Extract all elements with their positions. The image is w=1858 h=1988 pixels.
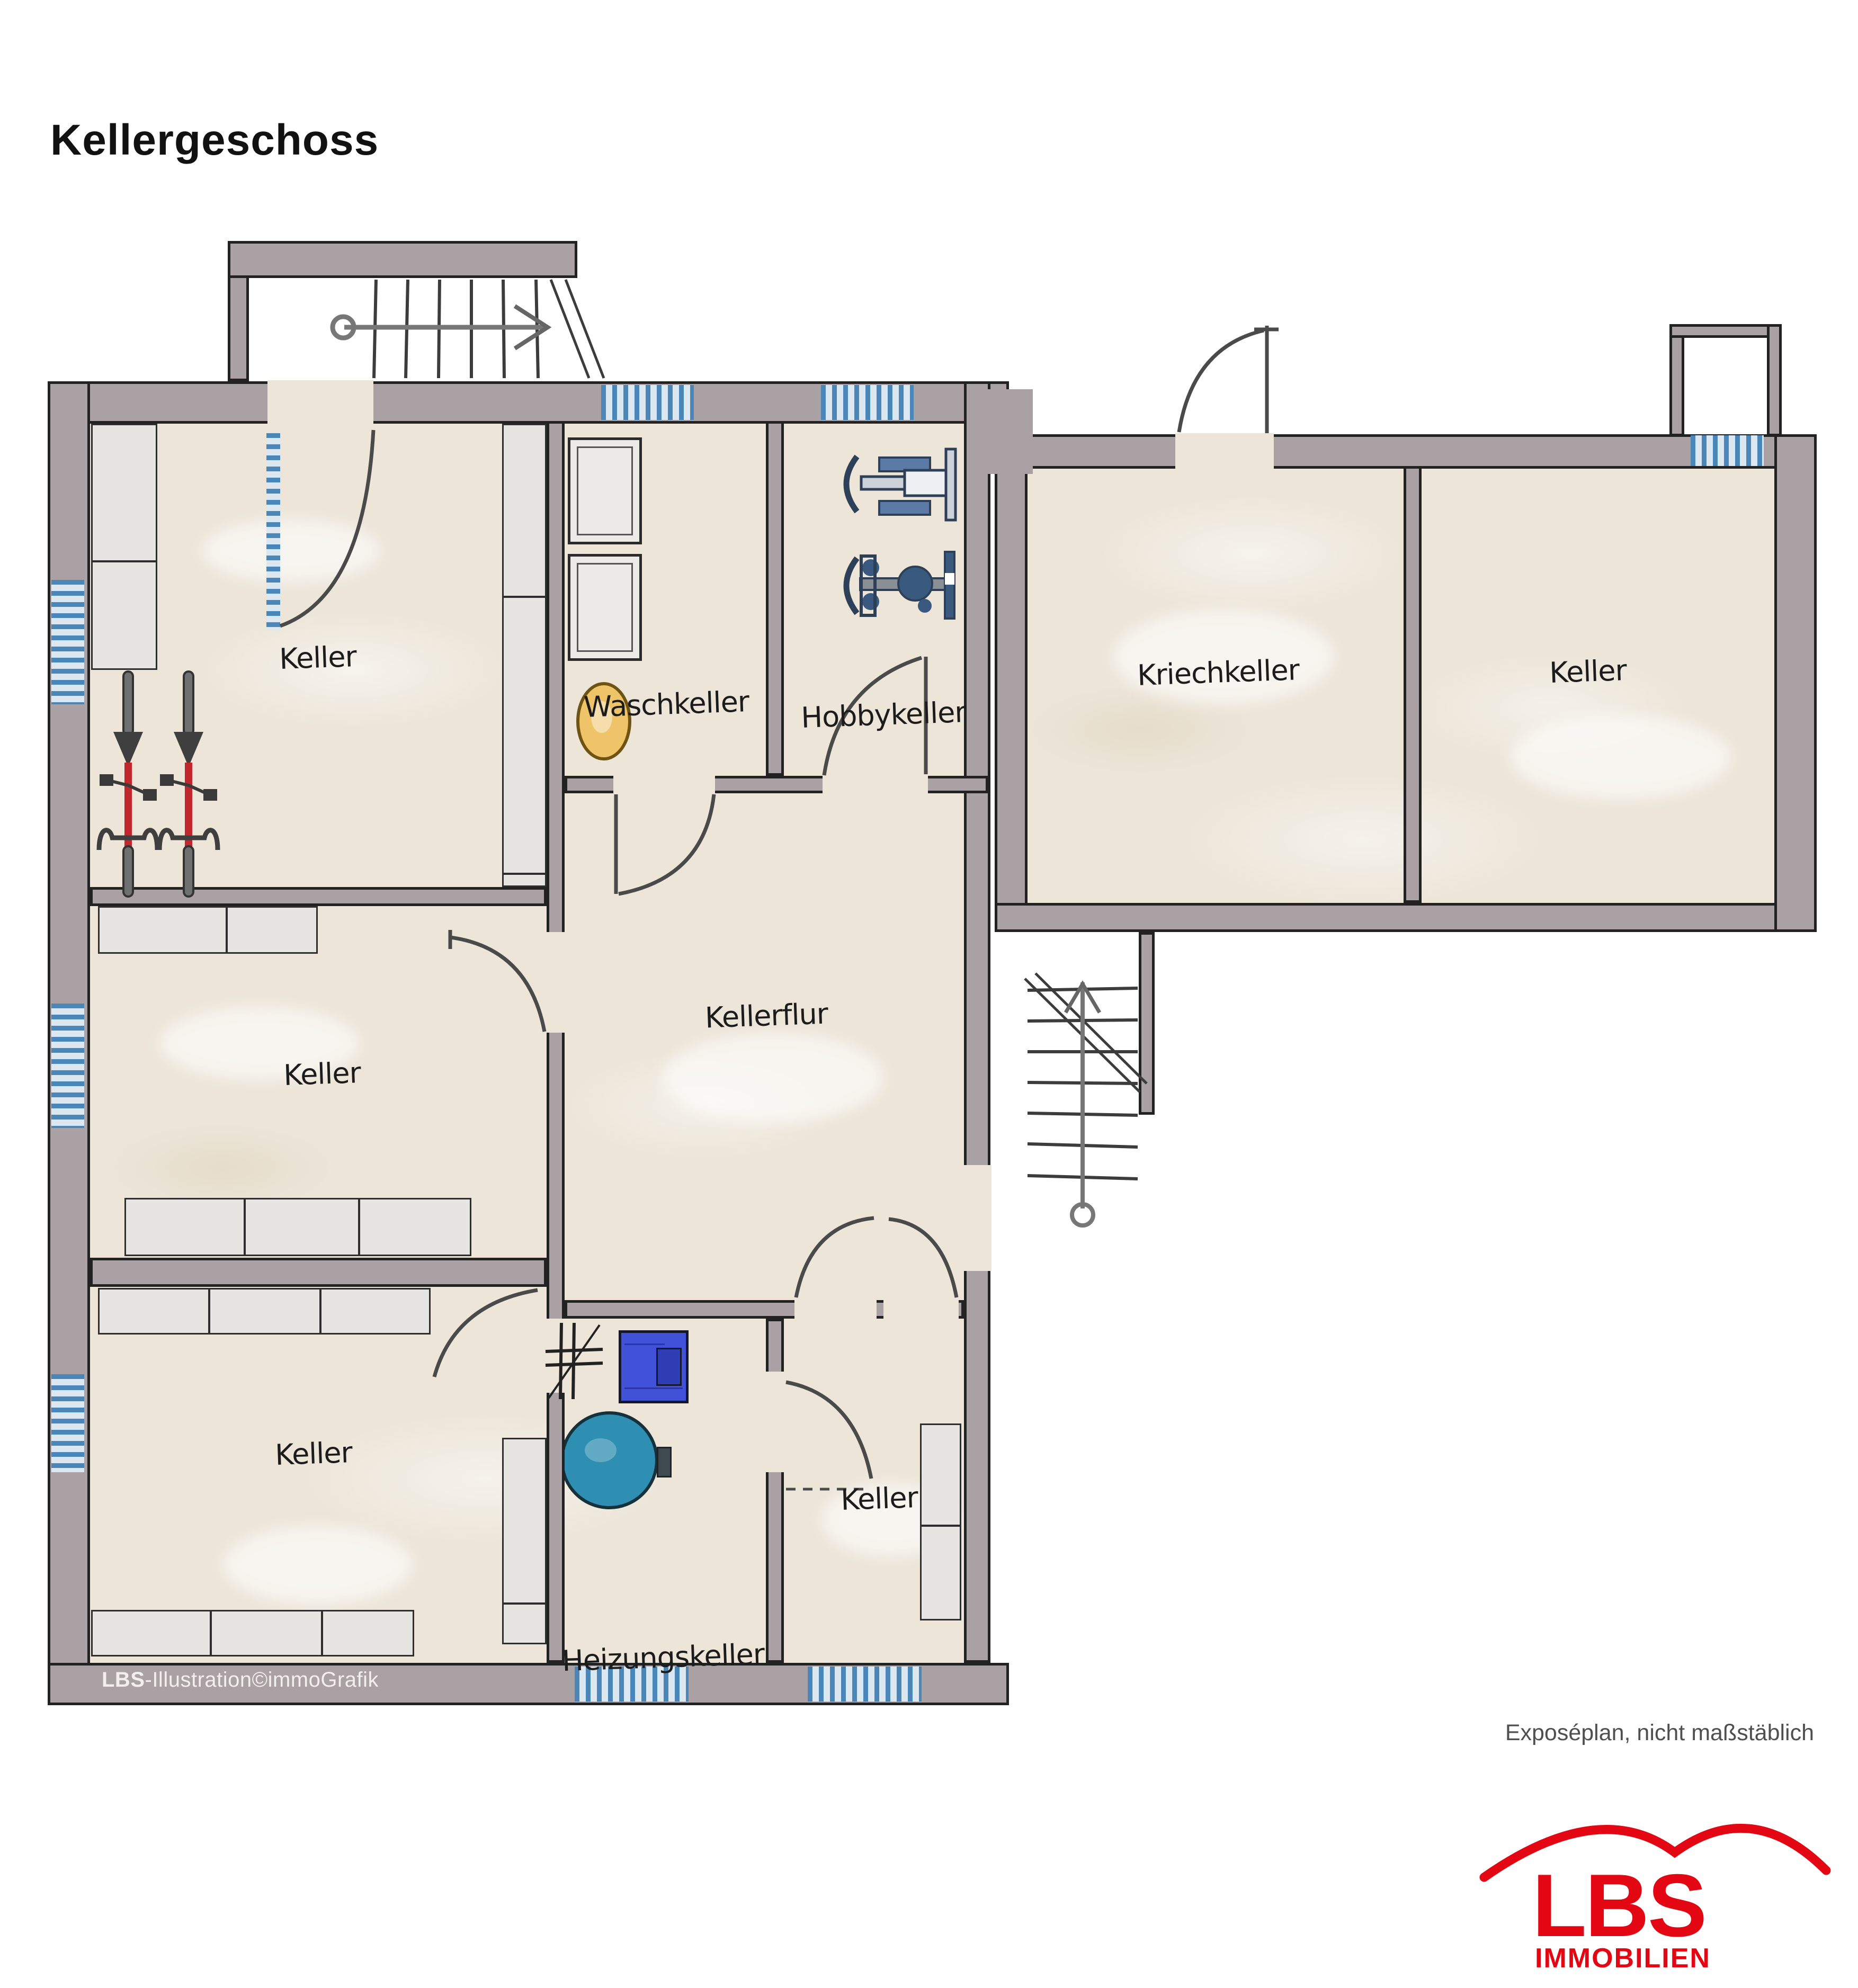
- window: [808, 1667, 922, 1702]
- shelf: [91, 1610, 414, 1656]
- wall-connector: [982, 389, 1033, 474]
- room-label-kellerflur: Kellerflur: [704, 997, 828, 1034]
- heating-tank: [560, 1411, 658, 1509]
- wall-keller-split-1: [90, 887, 547, 906]
- stair-stub-wall: [1139, 932, 1155, 1115]
- washing-machine: [568, 554, 642, 661]
- window: [1691, 435, 1764, 466]
- shelf: [502, 424, 547, 887]
- room-label-keller-west: Keller: [283, 1056, 361, 1092]
- wall-corridor-west: [547, 421, 565, 1663]
- door-opening: [963, 1165, 991, 1271]
- scale-disclaimer: Exposéplan, nicht maßstäblich: [1505, 1720, 1814, 1746]
- light-shaft-right: [1767, 324, 1782, 436]
- wing-wall-west: [995, 434, 1028, 932]
- room-label-kriechkeller: Kriechkeller: [1137, 653, 1300, 692]
- door-opening: [546, 932, 566, 1033]
- shelf: [502, 1438, 547, 1644]
- window: [821, 385, 914, 420]
- shelf: [98, 906, 318, 954]
- wing-wall-mid: [1404, 466, 1422, 903]
- door-opening: [546, 1319, 566, 1393]
- light-shaft-left: [1669, 324, 1684, 436]
- shelf: [920, 1423, 961, 1620]
- wall-wasch-hobby: [766, 421, 784, 776]
- watercolor-blotch: [662, 1033, 885, 1123]
- washing-machine: [568, 437, 642, 544]
- room-label-heizungskeller: Heizungskeller: [561, 1637, 765, 1678]
- wall-outer-east: [964, 381, 990, 1663]
- window: [601, 385, 694, 420]
- staircase-top: [333, 280, 604, 378]
- shelf: [91, 424, 157, 670]
- window: [51, 1374, 84, 1472]
- wall-keller-split-2: [90, 1258, 547, 1287]
- room-label-waschkeller: Waschkeller: [583, 685, 749, 724]
- window: [51, 580, 84, 704]
- illustration-watermark: LBS-Illustration©immoGrafik: [102, 1668, 379, 1692]
- wall-stairwell-top: [228, 241, 577, 278]
- lbs-logo-subtitle: IMMOBILIEN: [1535, 1942, 1711, 1974]
- watercolor-blotch: [1509, 715, 1732, 800]
- room-label-keller-nw: Keller: [279, 640, 356, 676]
- wing-wall-bottom: [995, 903, 1817, 932]
- door-opening: [1175, 433, 1274, 470]
- watercolor-blotch: [222, 1525, 413, 1605]
- entry-door-leaf: [266, 433, 280, 630]
- lbs-logo: LBS IMMOBILIEN: [1478, 1790, 1838, 1970]
- door-leaf-wing: [1254, 326, 1279, 433]
- light-shaft-top: [1669, 324, 1782, 338]
- door-arc-wing: [1179, 330, 1264, 432]
- shelf: [124, 1198, 471, 1256]
- room-label-keller-sw: Keller: [274, 1436, 352, 1472]
- room-label-hobbykeller: Hobbykeller: [800, 695, 966, 735]
- door-opening: [823, 775, 928, 794]
- floorplan-page: Kellergeschoss: [0, 0, 1858, 1988]
- watercolor-blotch: [201, 519, 381, 583]
- shelf: [98, 1288, 431, 1335]
- lbs-logo-name: LBS: [1532, 1855, 1705, 1957]
- wing-wall-east: [1774, 434, 1817, 932]
- door-opening: [794, 1299, 877, 1320]
- room-label-keller-sued: Keller: [840, 1481, 918, 1517]
- window: [51, 1004, 84, 1128]
- door-opening: [613, 775, 715, 794]
- door-opening: [883, 1299, 959, 1320]
- door-opening: [267, 380, 373, 425]
- furnace: [619, 1330, 689, 1403]
- door-opening: [765, 1372, 785, 1472]
- room-label-keller-ne: Keller: [1549, 653, 1627, 689]
- tank-valve: [657, 1447, 672, 1477]
- staircase-exterior: [1025, 973, 1147, 1225]
- page-title: Kellergeschoss: [50, 115, 379, 165]
- wall-heiz-keller: [766, 1319, 784, 1663]
